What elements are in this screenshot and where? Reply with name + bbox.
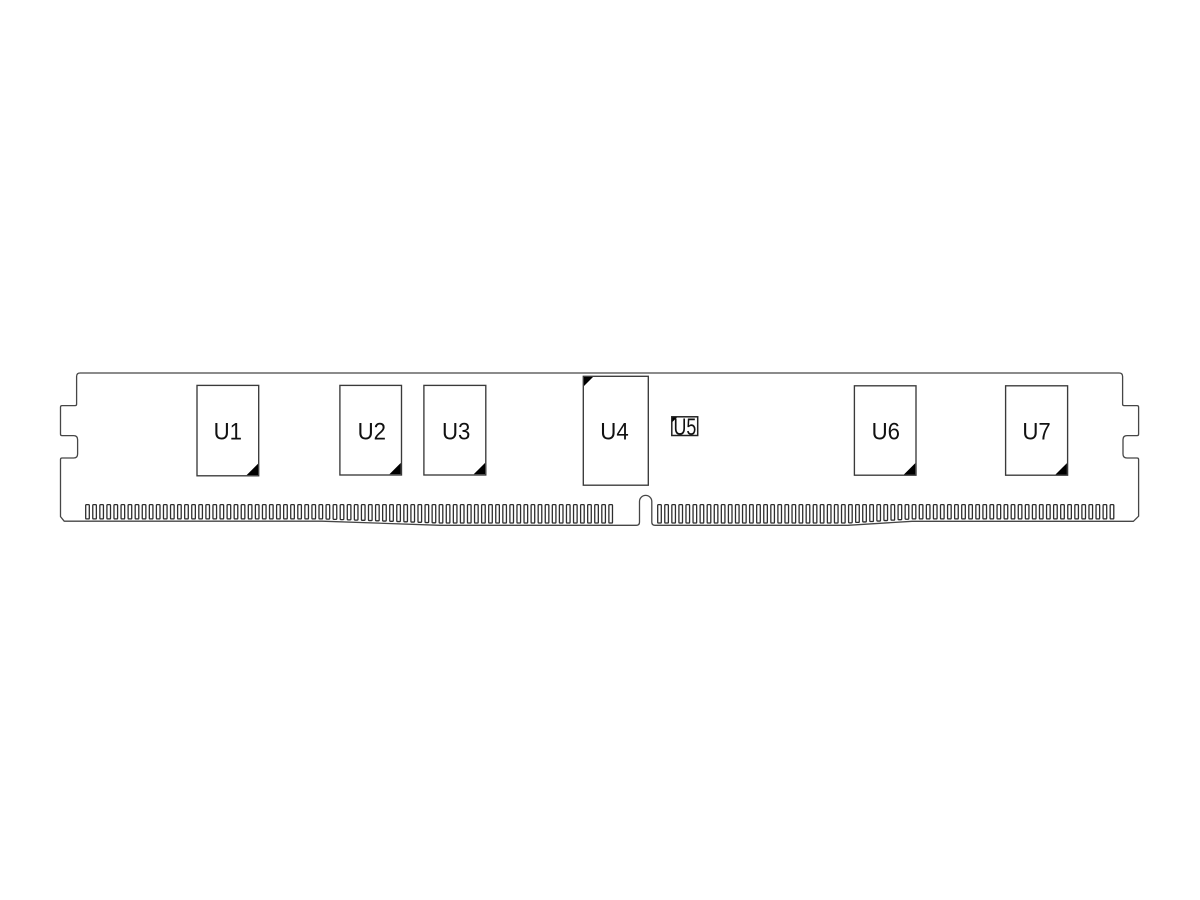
svg-text:U5: U5 [674, 414, 697, 441]
svg-text:U7: U7 [1022, 419, 1050, 446]
svg-text:U1: U1 [214, 419, 242, 446]
svg-text:U4: U4 [600, 419, 628, 446]
svg-text:U2: U2 [358, 419, 386, 446]
svg-text:U3: U3 [442, 419, 470, 446]
svg-text:U6: U6 [872, 419, 900, 446]
